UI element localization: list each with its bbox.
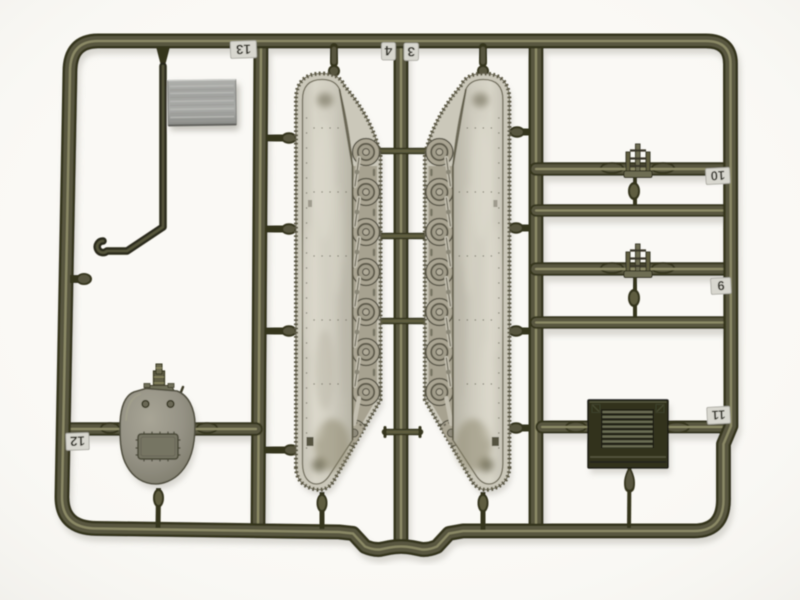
- svg-text:11: 11: [711, 407, 726, 423]
- svg-text:9: 9: [717, 278, 725, 293]
- svg-text:12: 12: [70, 433, 86, 449]
- svg-text:10: 10: [710, 168, 725, 184]
- svg-text:13: 13: [235, 42, 251, 58]
- svg-text:3: 3: [407, 44, 415, 60]
- svg-text:4: 4: [384, 43, 392, 59]
